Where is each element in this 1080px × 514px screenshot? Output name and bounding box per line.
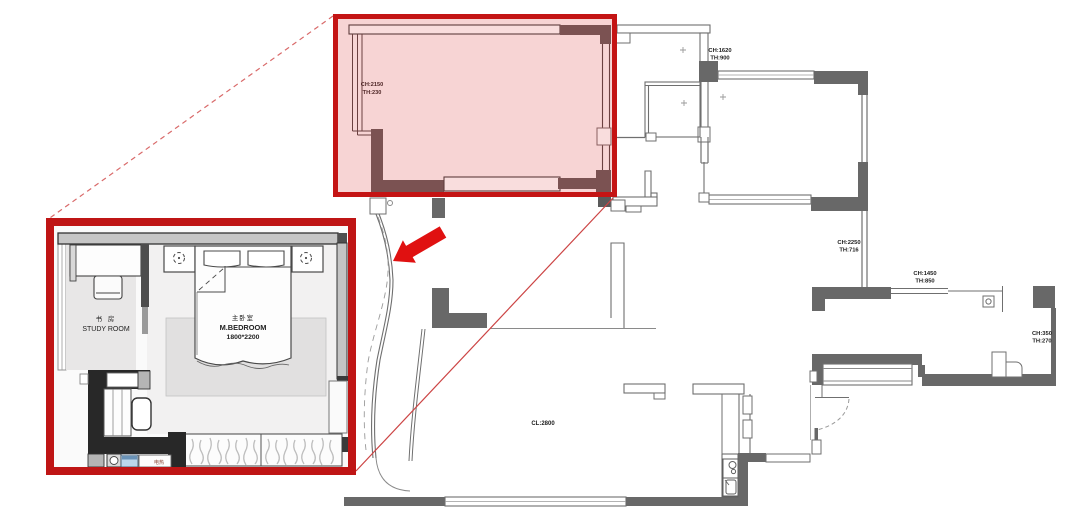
svg-text:书 房: 书 房: [96, 314, 117, 323]
svg-text:CH:1450: CH:1450: [913, 271, 936, 277]
svg-text:主卧室: 主卧室: [232, 313, 254, 322]
svg-text:STUDY ROOM: STUDY ROOM: [82, 326, 129, 333]
svg-text:电热: 电热: [154, 459, 164, 466]
svg-text:CH:2250: CH:2250: [837, 240, 860, 246]
svg-text:CH:350: CH:350: [1032, 331, 1052, 337]
svg-text:TH:850: TH:850: [915, 279, 934, 285]
svg-text:CL:2800: CL:2800: [531, 421, 555, 427]
svg-text:CH:1620: CH:1620: [708, 48, 731, 54]
svg-text:TH:270: TH:270: [1032, 339, 1051, 345]
svg-text:CH:2150: CH:2150: [361, 82, 383, 88]
svg-text:1800*2200: 1800*2200: [227, 334, 260, 341]
svg-text:TH:900: TH:900: [710, 56, 729, 62]
svg-text:M.BEDROOM: M.BEDROOM: [220, 323, 267, 332]
svg-text:TH:716: TH:716: [839, 248, 859, 254]
svg-text:TH:230: TH:230: [363, 90, 382, 96]
